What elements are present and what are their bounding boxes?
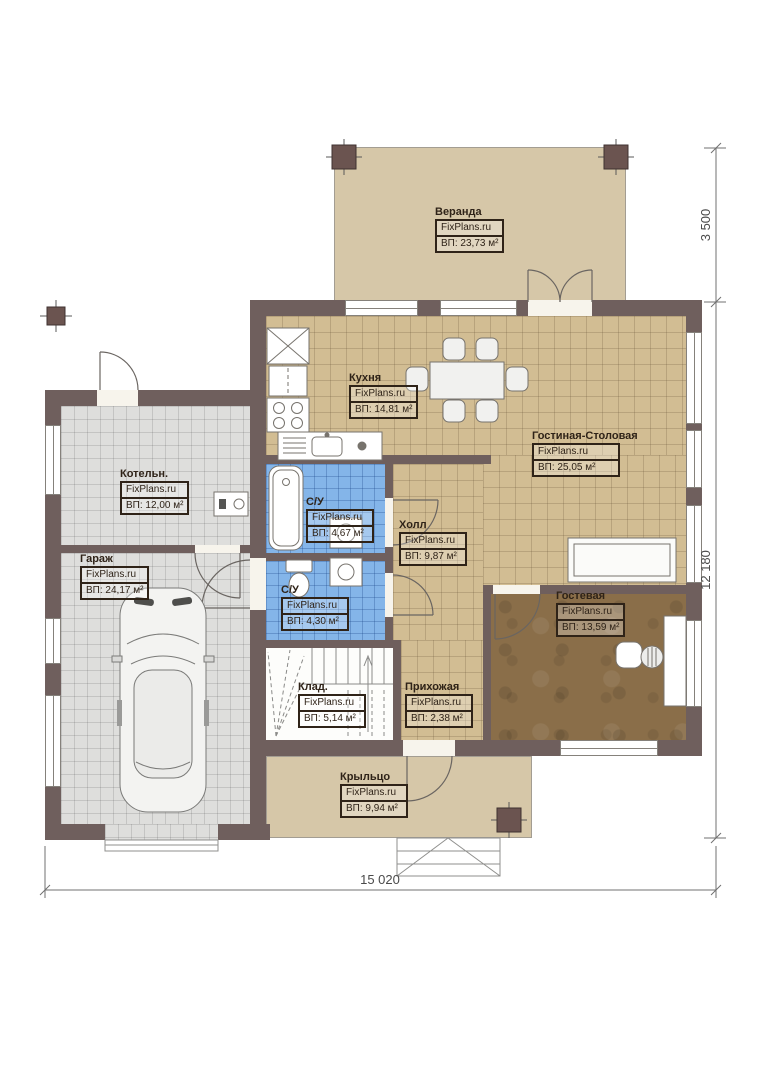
watermark-text: FixPlans.ru: [437, 221, 502, 237]
watermark-text: FixPlans.ru: [122, 483, 187, 499]
room-info-box: FixPlans.ru ВП: 24,17 м²: [80, 566, 149, 600]
floor-plan: 3 500 12 180 15 020 Веранда FixPlans.ru …: [0, 0, 763, 1080]
room-info-box: FixPlans.ru ВП: 14,81 м²: [349, 385, 418, 419]
room-label-veranda: Веранда FixPlans.ru ВП: 23,73 м²: [435, 206, 504, 253]
bathtub: [269, 466, 303, 550]
garage-apron-step: [105, 840, 218, 851]
room-name: Котельн.: [120, 468, 189, 481]
room-area: ВП: 23,73 м²: [437, 237, 502, 251]
room-name: Гостевая: [556, 590, 625, 603]
room-area: ВП: 5,14 м²: [300, 712, 364, 726]
room-area: ВП: 4,30 м²: [283, 615, 347, 629]
bathroom2-vanity: [330, 558, 362, 586]
room-info-box: FixPlans.ru ВП: 9,87 м²: [399, 532, 467, 566]
room-label-hall: Холл FixPlans.ru ВП: 9,87 м²: [399, 519, 467, 566]
door-garage-house: [202, 560, 250, 608]
room-label-garage: Гараж FixPlans.ru ВП: 24,17 м²: [80, 553, 149, 600]
pillar-porch: [491, 802, 527, 838]
room-label-storage: Клад. FixPlans.ru ВП: 5,14 м²: [298, 681, 366, 728]
watermark-text: FixPlans.ru: [283, 599, 347, 615]
room-info-box: FixPlans.ru ВП: 4,67 м²: [306, 509, 374, 543]
watermark-text: FixPlans.ru: [534, 445, 618, 461]
room-name: Прихожая: [405, 681, 473, 694]
room-name: Холл: [399, 519, 467, 532]
door-front-entrance: [407, 756, 452, 801]
dimension-house-depth: 12 180: [698, 550, 713, 590]
plan-overlay: 3 500 12 180 15 020: [0, 0, 763, 1080]
door-bathroom2: [393, 575, 433, 615]
room-name: Крыльцо: [340, 771, 408, 784]
room-label-porch: Крыльцо FixPlans.ru ВП: 9,94 м²: [340, 771, 408, 818]
door-veranda-french: [528, 270, 592, 302]
pillar-veranda-left: [326, 139, 362, 175]
room-info-box: FixPlans.ru ВП: 2,38 м²: [405, 694, 473, 728]
room-label-bathroom1: С/У FixPlans.ru ВП: 4,67 м²: [306, 496, 374, 543]
guest-desk: [616, 616, 686, 706]
window-bench: [568, 538, 676, 582]
room-info-box: FixPlans.ru ВП: 5,14 м²: [298, 694, 366, 728]
room-area: ВП: 12,00 м²: [122, 499, 187, 513]
room-name: С/У: [281, 584, 349, 597]
room-area: ВП: 13,59 м²: [558, 621, 623, 635]
room-area: ВП: 25,05 м²: [534, 461, 618, 475]
room-info-box: FixPlans.ru ВП: 25,05 м²: [532, 443, 620, 477]
door-guest-room: [495, 594, 540, 639]
dining-set: [406, 338, 528, 422]
dimension-veranda-depth: 3 500: [698, 209, 713, 242]
car-top-view: [112, 588, 214, 812]
door-boiler-garage: [195, 553, 240, 598]
room-area: ВП: 24,17 м²: [82, 584, 147, 598]
watermark-text: FixPlans.ru: [342, 786, 406, 802]
dimension-house-width: 15 020: [360, 872, 400, 887]
boiler-unit: [214, 492, 248, 516]
room-label-kitchen: Кухня FixPlans.ru ВП: 14,81 м²: [349, 372, 418, 419]
watermark-text: FixPlans.ru: [300, 696, 364, 712]
room-name: Веранда: [435, 206, 504, 219]
watermark-text: FixPlans.ru: [407, 696, 471, 712]
door-side-entrance: [100, 352, 138, 390]
watermark-text: FixPlans.ru: [308, 511, 372, 527]
room-area: ВП: 9,94 м²: [342, 802, 406, 816]
room-label-bathroom2: С/У FixPlans.ru ВП: 4,30 м²: [281, 584, 349, 631]
watermark-text: FixPlans.ru: [351, 387, 416, 403]
room-info-box: FixPlans.ru ВП: 4,30 м²: [281, 597, 349, 631]
room-info-box: FixPlans.ru ВП: 12,00 м²: [120, 481, 189, 515]
room-name: Кухня: [349, 372, 418, 385]
watermark-text: FixPlans.ru: [401, 534, 465, 550]
room-name: С/У: [306, 496, 374, 509]
room-label-living-dining: Гостиная-Столовая FixPlans.ru ВП: 25,05 …: [532, 430, 638, 477]
pillar-freestanding-left: [40, 300, 72, 332]
room-area: ВП: 4,67 м²: [308, 527, 372, 541]
room-info-box: FixPlans.ru ВП: 13,59 м²: [556, 603, 625, 637]
watermark-text: FixPlans.ru: [82, 568, 147, 584]
room-label-guest: Гостевая FixPlans.ru ВП: 13,59 м²: [556, 590, 625, 637]
watermark-text: FixPlans.ru: [558, 605, 623, 621]
room-name: Гостиная-Столовая: [532, 430, 638, 443]
room-area: ВП: 2,38 м²: [407, 712, 471, 726]
room-name: Клад.: [298, 681, 366, 694]
room-info-box: FixPlans.ru ВП: 9,94 м²: [340, 784, 408, 818]
room-info-box: FixPlans.ru ВП: 23,73 м²: [435, 219, 504, 253]
room-name: Гараж: [80, 553, 149, 566]
room-area: ВП: 9,87 м²: [401, 550, 465, 564]
room-area: ВП: 14,81 м²: [351, 403, 416, 417]
room-label-boiler: Котельн. FixPlans.ru ВП: 12,00 м²: [120, 468, 189, 515]
porch-steps: [397, 838, 500, 876]
pillar-veranda-right: [598, 139, 634, 175]
room-label-entry: Прихожая FixPlans.ru ВП: 2,38 м²: [405, 681, 473, 728]
